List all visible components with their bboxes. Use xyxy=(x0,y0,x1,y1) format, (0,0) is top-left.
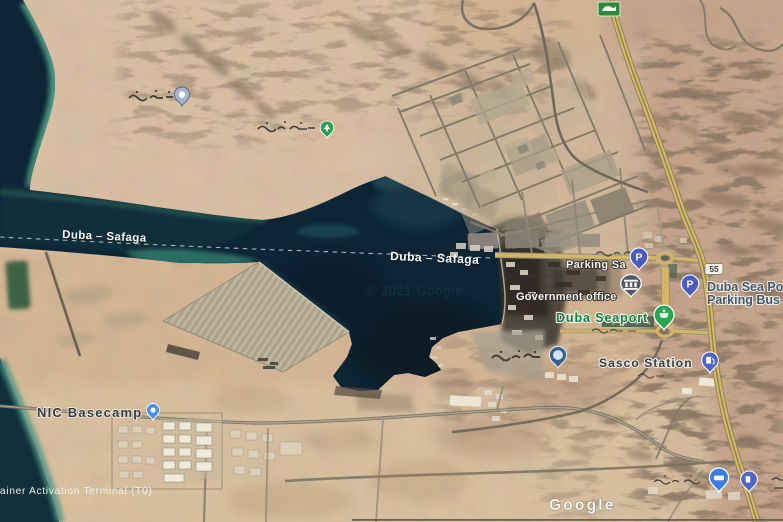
svg-text:Sasco Station: Sasco Station xyxy=(599,356,693,370)
svg-text:P: P xyxy=(687,280,694,291)
svg-text:Parking Bus: Parking Bus xyxy=(707,293,780,307)
svg-text:NIC Basecamp: NIC Basecamp xyxy=(37,405,142,420)
svg-text:Duba Sea Por: Duba Sea Por xyxy=(707,280,783,294)
svg-text:Google: Google xyxy=(549,497,616,514)
svg-text:P: P xyxy=(636,253,643,264)
svg-text:Government office: Government office xyxy=(516,291,617,303)
svg-text:55: 55 xyxy=(710,265,719,274)
svg-text:Parking Sa: Parking Sa xyxy=(566,259,626,271)
svg-text:Duba Seaport: Duba Seaport xyxy=(556,311,648,325)
svg-text:ntainer Activation Terminal (T: ntainer Activation Terminal (T0) xyxy=(0,486,153,497)
svg-text:© 2021 Google: © 2021 Google xyxy=(366,284,463,298)
